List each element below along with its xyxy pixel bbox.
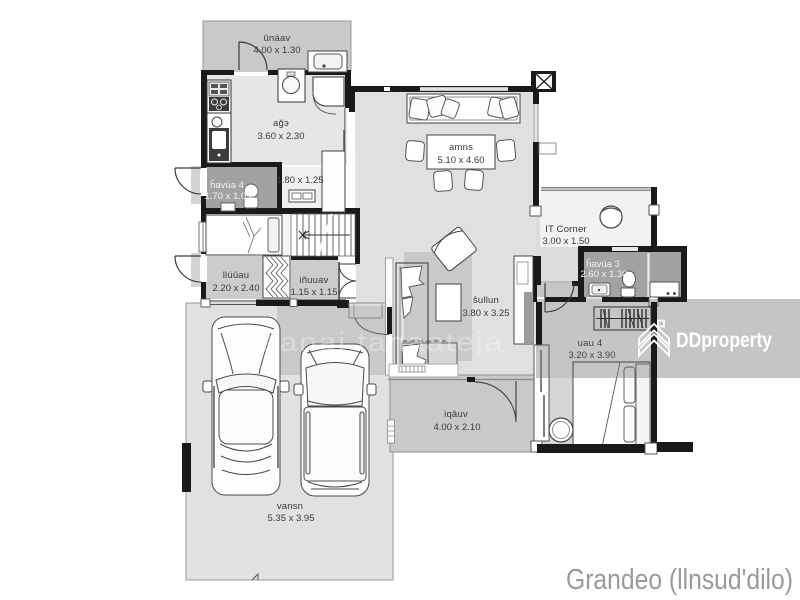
svg-text:3.00 x 1.50: 3.00 x 1.50 xyxy=(542,236,589,247)
svg-text:4.00 x 1.30: 4.00 x 1.30 xyxy=(253,45,300,56)
svg-text:IT Corner: IT Corner xyxy=(545,224,587,235)
svg-text:iqâuv: iqâuv xyxy=(444,409,468,420)
svg-text:iñuuav: iñuuav xyxy=(299,275,328,286)
svg-text:3.60 x 2.30: 3.60 x 2.30 xyxy=(257,131,304,142)
svg-text:ĥavúa 4: ĥavúa 4 xyxy=(210,179,244,191)
svg-text:3.80 x 3.25: 3.80 x 3.25 xyxy=(462,308,509,319)
svg-text:ŝullun: ŝullun xyxy=(473,295,499,306)
svg-text:ûnáav: ûnáav xyxy=(264,33,291,44)
svg-text:2.20 x 2.40: 2.20 x 2.40 xyxy=(212,283,259,294)
svg-text:DDproperty: DDproperty xyxy=(676,329,772,352)
svg-text:4.00 x 2.10: 4.00 x 2.10 xyxy=(433,422,480,433)
svg-text:llúûau: llúûau xyxy=(223,270,250,281)
svg-text:5.10 x 4.60: 5.10 x 4.60 xyxy=(437,155,484,166)
svg-text:otsanai tanaateja: otsanai tanaateja xyxy=(232,327,504,357)
svg-text:1.80 x 1.25: 1.80 x 1.25 xyxy=(276,175,323,186)
svg-text:amns: amns xyxy=(449,142,473,153)
svg-text:Grandeo (llnsud'dilo): Grandeo (llnsud'dilo) xyxy=(566,564,793,596)
svg-text:vansn: vansn xyxy=(277,501,303,512)
svg-text:1.70 x 1.05: 1.70 x 1.05 xyxy=(204,191,251,202)
svg-text:2.60 x 1.30: 2.60 x 1.30 xyxy=(580,269,627,280)
svg-text:ağэ: ağэ xyxy=(273,118,289,129)
svg-text:5.35 x 3.95: 5.35 x 3.95 xyxy=(267,513,314,524)
svg-text:1.15 x 1.15: 1.15 x 1.15 xyxy=(290,287,337,298)
